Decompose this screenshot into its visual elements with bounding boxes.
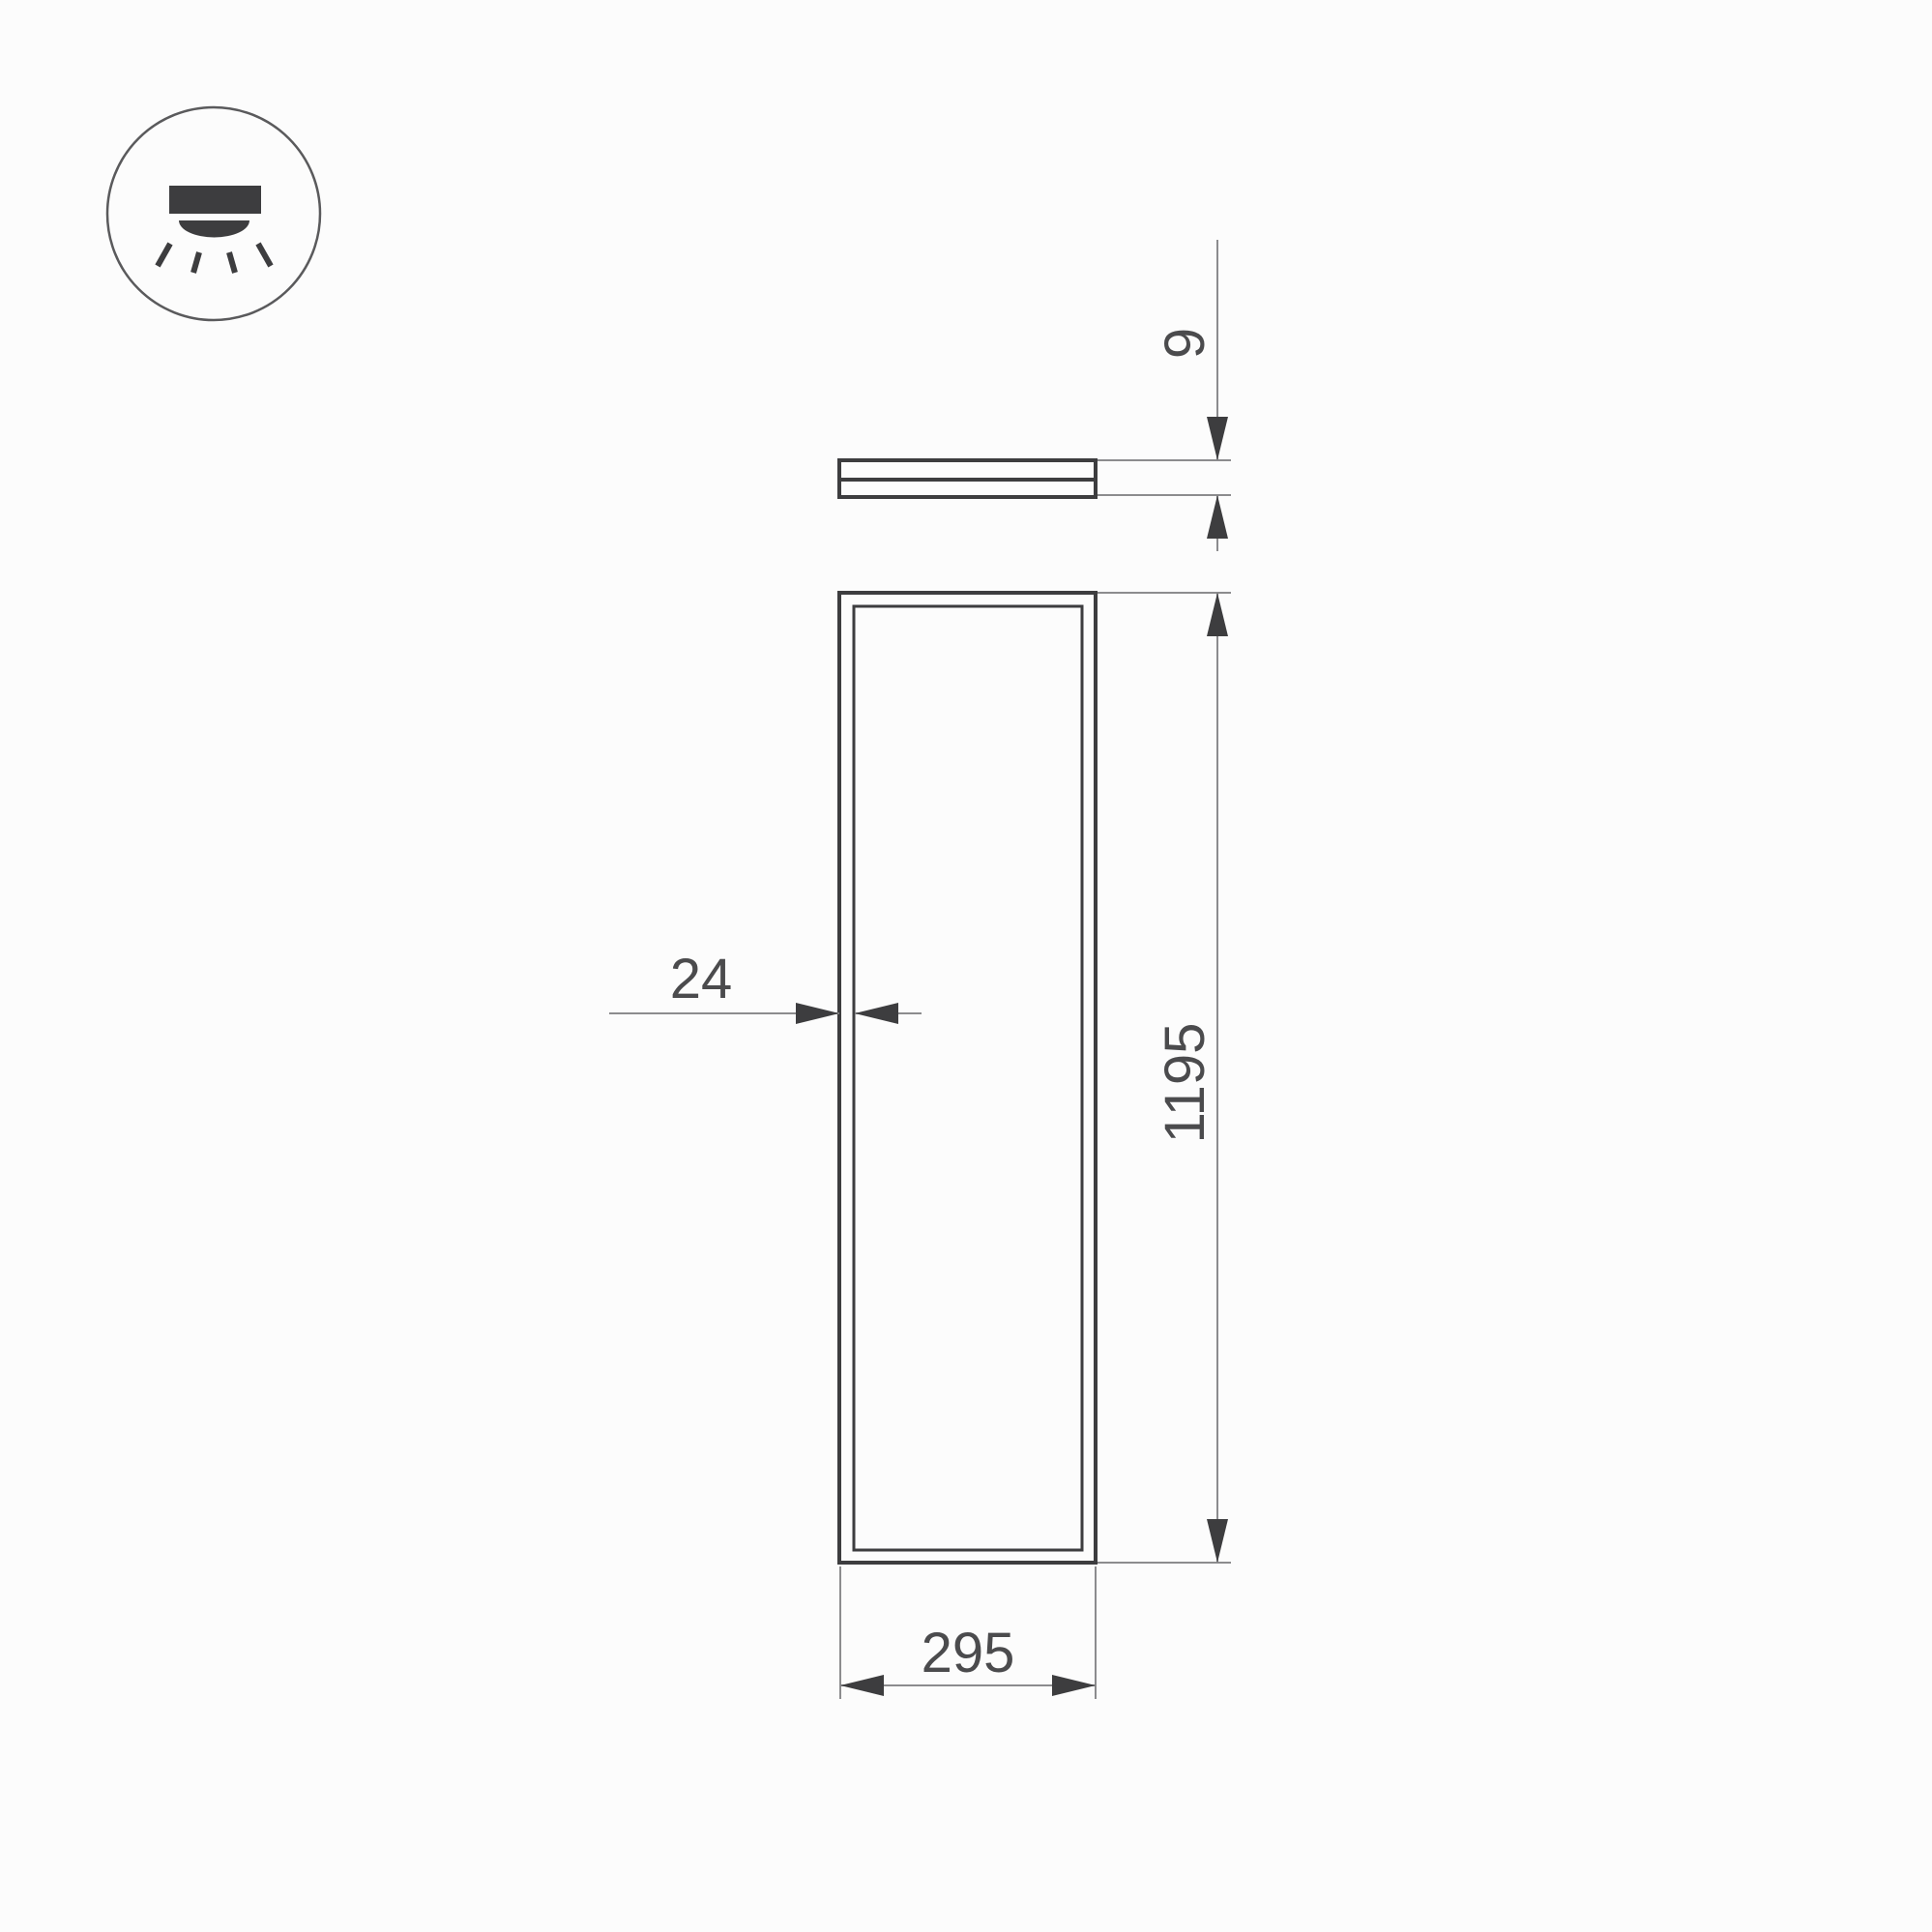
dimension-thickness-label: 9	[1154, 328, 1216, 359]
dimension-height-label: 1195	[1154, 1023, 1216, 1144]
icon-fixture-body	[169, 186, 261, 214]
dimension-width-label: 295	[922, 1622, 1015, 1684]
dimension-frame-label: 24	[670, 948, 733, 1010]
led-panel-dimension-drawing: 9 1195 24	[0, 0, 1932, 1932]
